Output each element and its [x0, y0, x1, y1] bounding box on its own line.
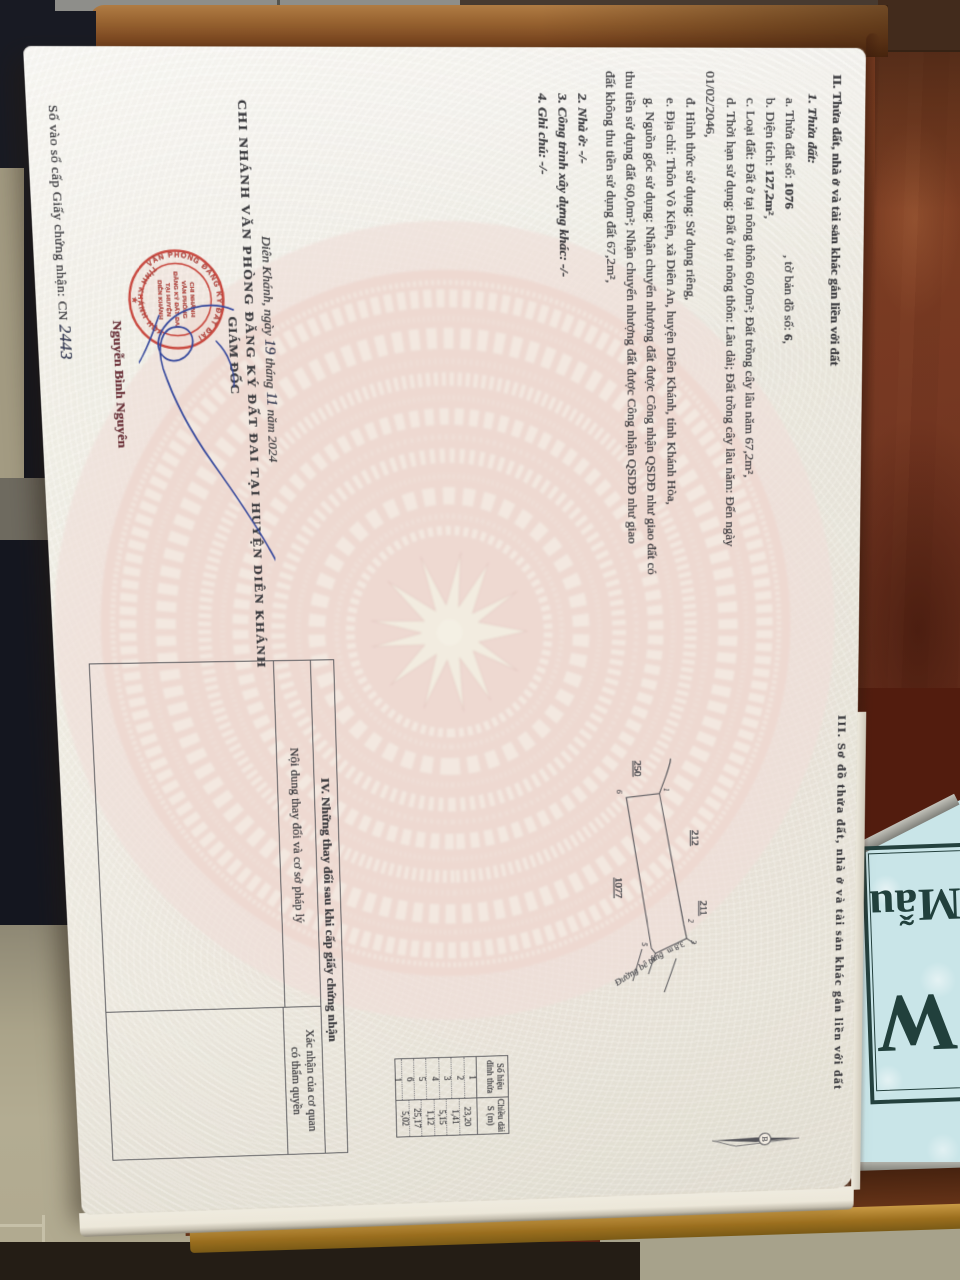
svg-text:6: 6	[615, 790, 623, 795]
svg-text:5: 5	[640, 942, 648, 946]
svg-text:211: 211	[698, 901, 709, 917]
svg-text:B: B	[759, 1136, 768, 1142]
svg-text:2: 2	[686, 919, 694, 923]
svg-text:3,8 m: 3,8 m	[666, 940, 686, 956]
svg-text:212: 212	[689, 830, 700, 846]
svg-text:1: 1	[662, 788, 670, 792]
svg-text:1077: 1077	[613, 877, 624, 898]
svg-text:250: 250	[632, 761, 643, 777]
svg-text:Đường bê tông: Đường bê tông	[612, 949, 665, 989]
svg-text:3: 3	[689, 939, 697, 944]
